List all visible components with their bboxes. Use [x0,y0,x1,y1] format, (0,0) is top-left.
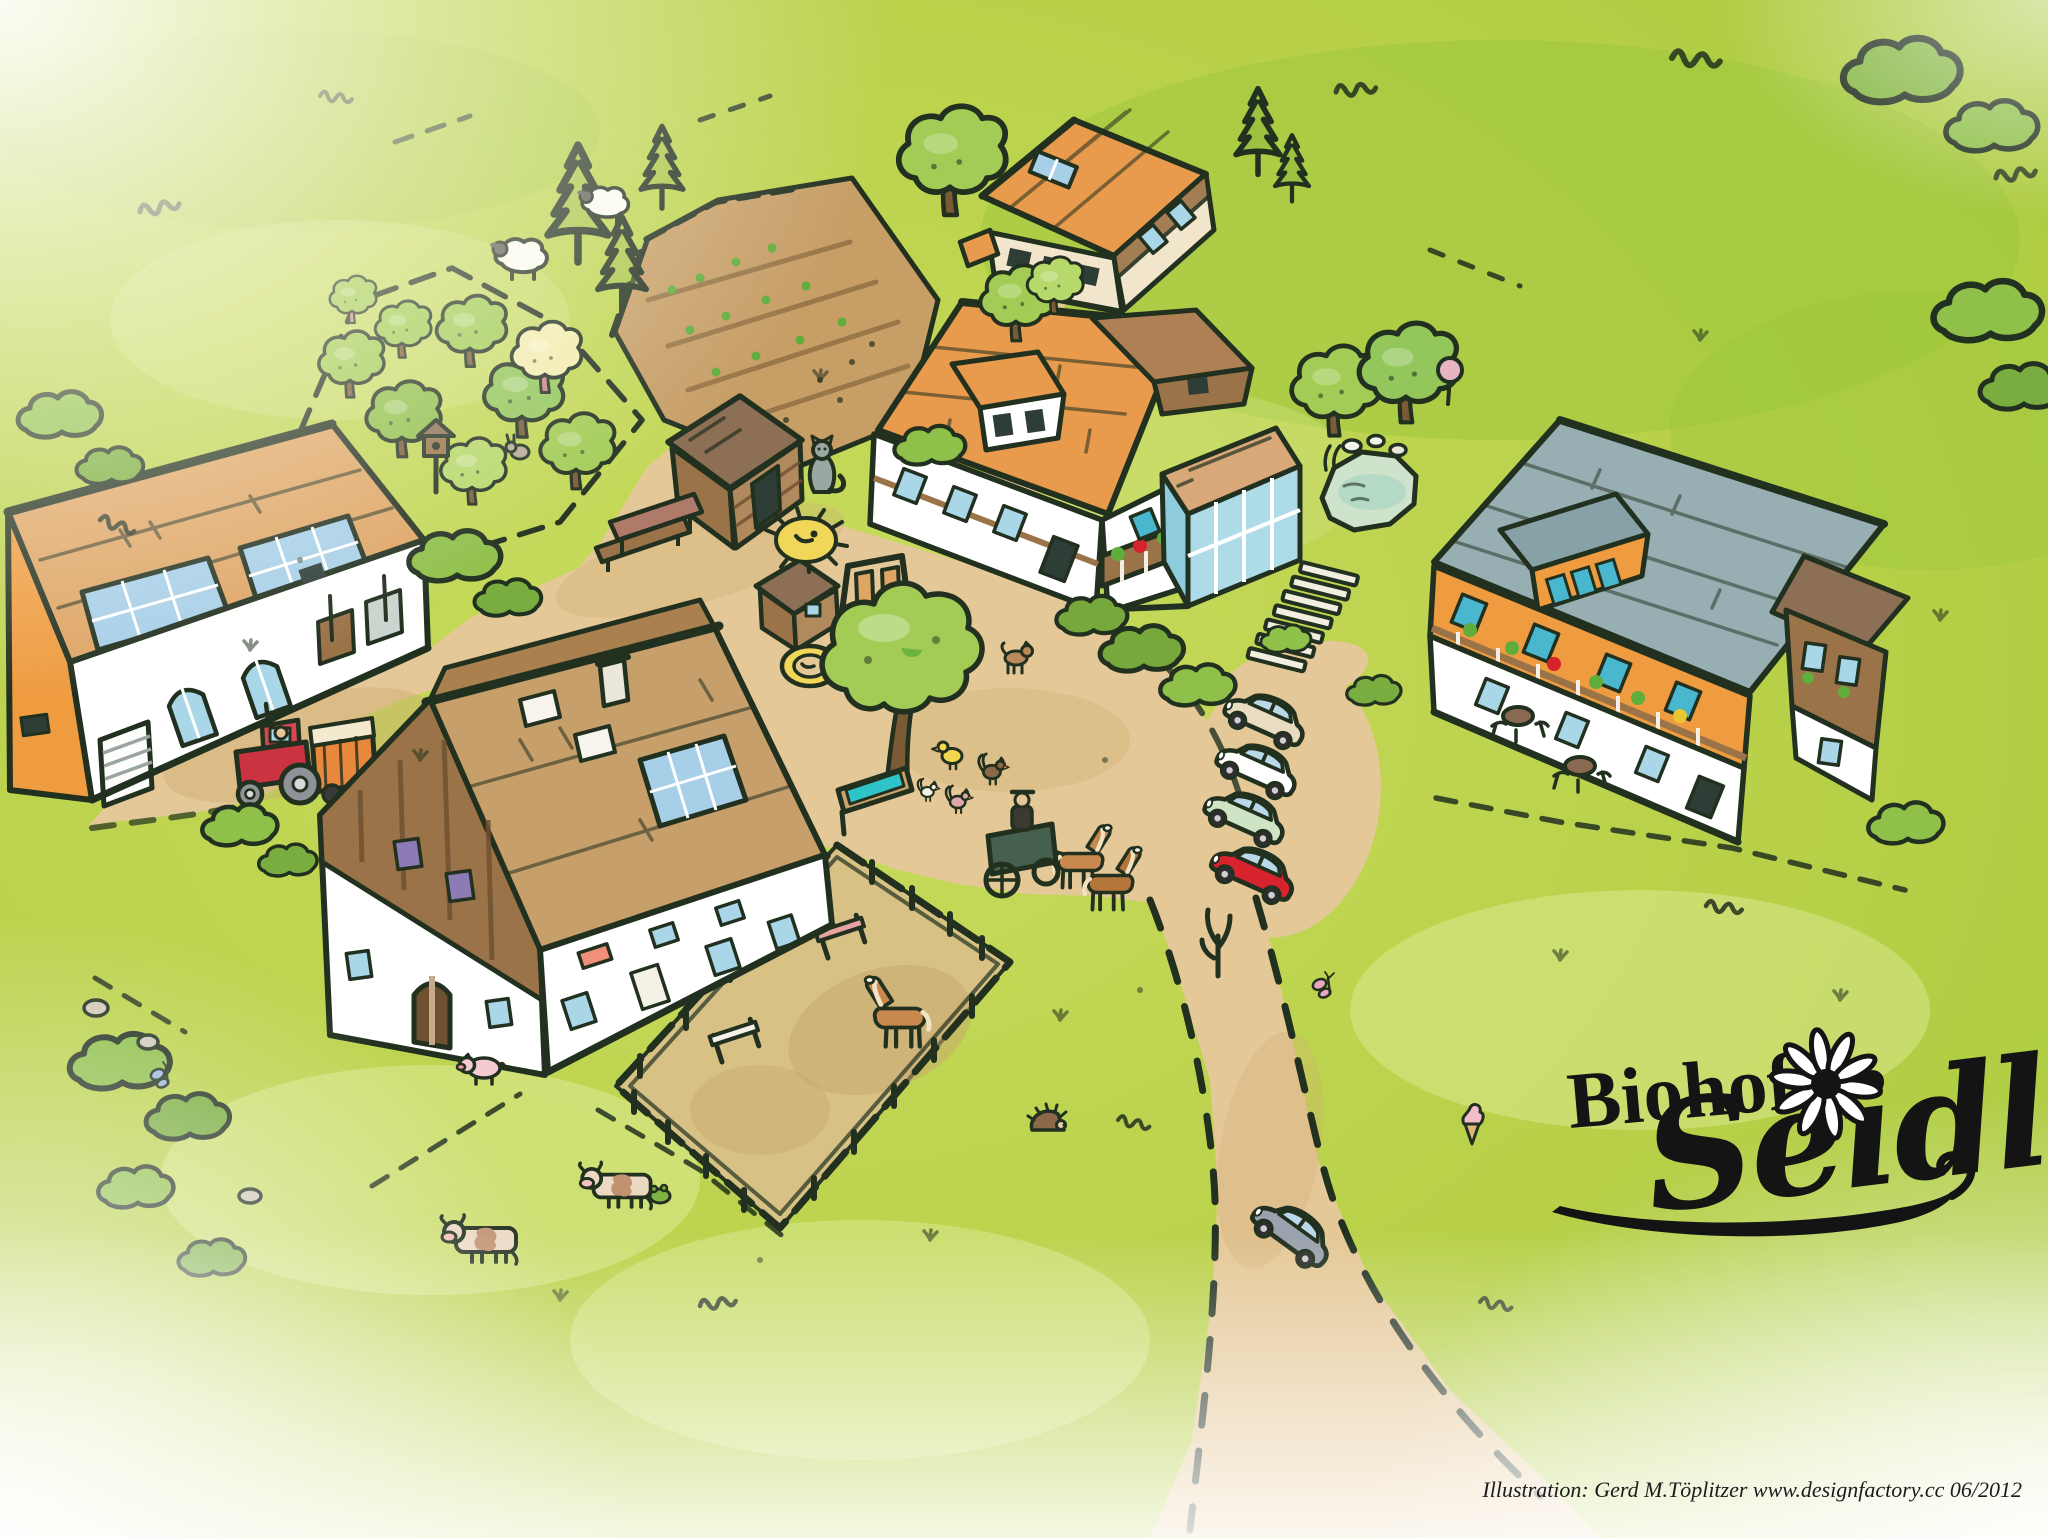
carriage-driver [1012,792,1033,830]
illustration-credit: Illustration: Gerd M.Töplitzer www.desig… [1481,1477,2022,1502]
barn-gable-window [21,714,49,735]
farm-scene: Biohof Seidl Illustration: Gerd M.Töplit… [0,0,2048,1538]
farm-map-illustration: Biohof Seidl Illustration: Gerd M.Töplit… [0,0,2048,1538]
pond-rock [1368,436,1384,447]
tractor-driver [275,727,287,739]
pond-rock [1390,445,1406,456]
pond-rock [1343,440,1361,452]
tractor-exhaust [266,704,268,720]
